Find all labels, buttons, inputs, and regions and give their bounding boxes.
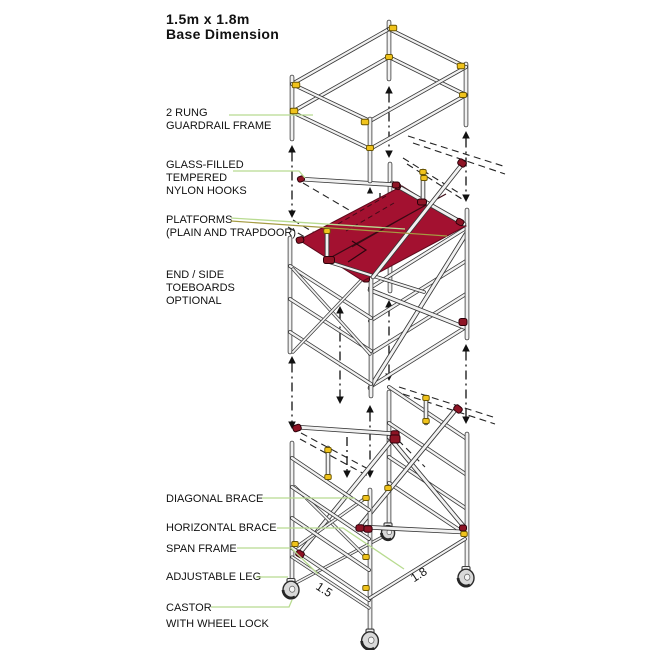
- svg-text:OPTIONAL: OPTIONAL: [166, 295, 222, 307]
- svg-text:Base Dimension: Base Dimension: [166, 26, 279, 42]
- svg-text:WITH WHEEL LOCK: WITH WHEEL LOCK: [166, 618, 270, 630]
- svg-text:2 RUNG: 2 RUNG: [166, 107, 208, 119]
- svg-text:END / SIDE: END / SIDE: [166, 269, 224, 281]
- svg-text:TEMPERED: TEMPERED: [166, 172, 227, 184]
- svg-text:(PLAIN AND TRAPDOOR): (PLAIN AND TRAPDOOR): [166, 227, 296, 239]
- svg-text:TOEBOARDS: TOEBOARDS: [166, 282, 235, 294]
- svg-text:ADJUSTABLE LEG: ADJUSTABLE LEG: [166, 571, 261, 583]
- svg-text:NYLON HOOKS: NYLON HOOKS: [166, 185, 247, 197]
- svg-text:SPAN FRAME: SPAN FRAME: [166, 543, 237, 555]
- svg-text:HORIZONTAL BRACE: HORIZONTAL BRACE: [166, 522, 277, 534]
- svg-text:GUARDRAIL FRAME: GUARDRAIL FRAME: [166, 120, 271, 132]
- svg-text:1.8: 1.8: [408, 564, 430, 585]
- svg-text:DIAGONAL BRACE: DIAGONAL BRACE: [166, 493, 263, 505]
- svg-text:CASTOR: CASTOR: [166, 602, 212, 614]
- svg-text:GLASS-FILLED: GLASS-FILLED: [166, 159, 244, 171]
- svg-text:1.5m x 1.8m: 1.5m x 1.8m: [166, 11, 250, 27]
- svg-text:PLATFORMS: PLATFORMS: [166, 214, 232, 226]
